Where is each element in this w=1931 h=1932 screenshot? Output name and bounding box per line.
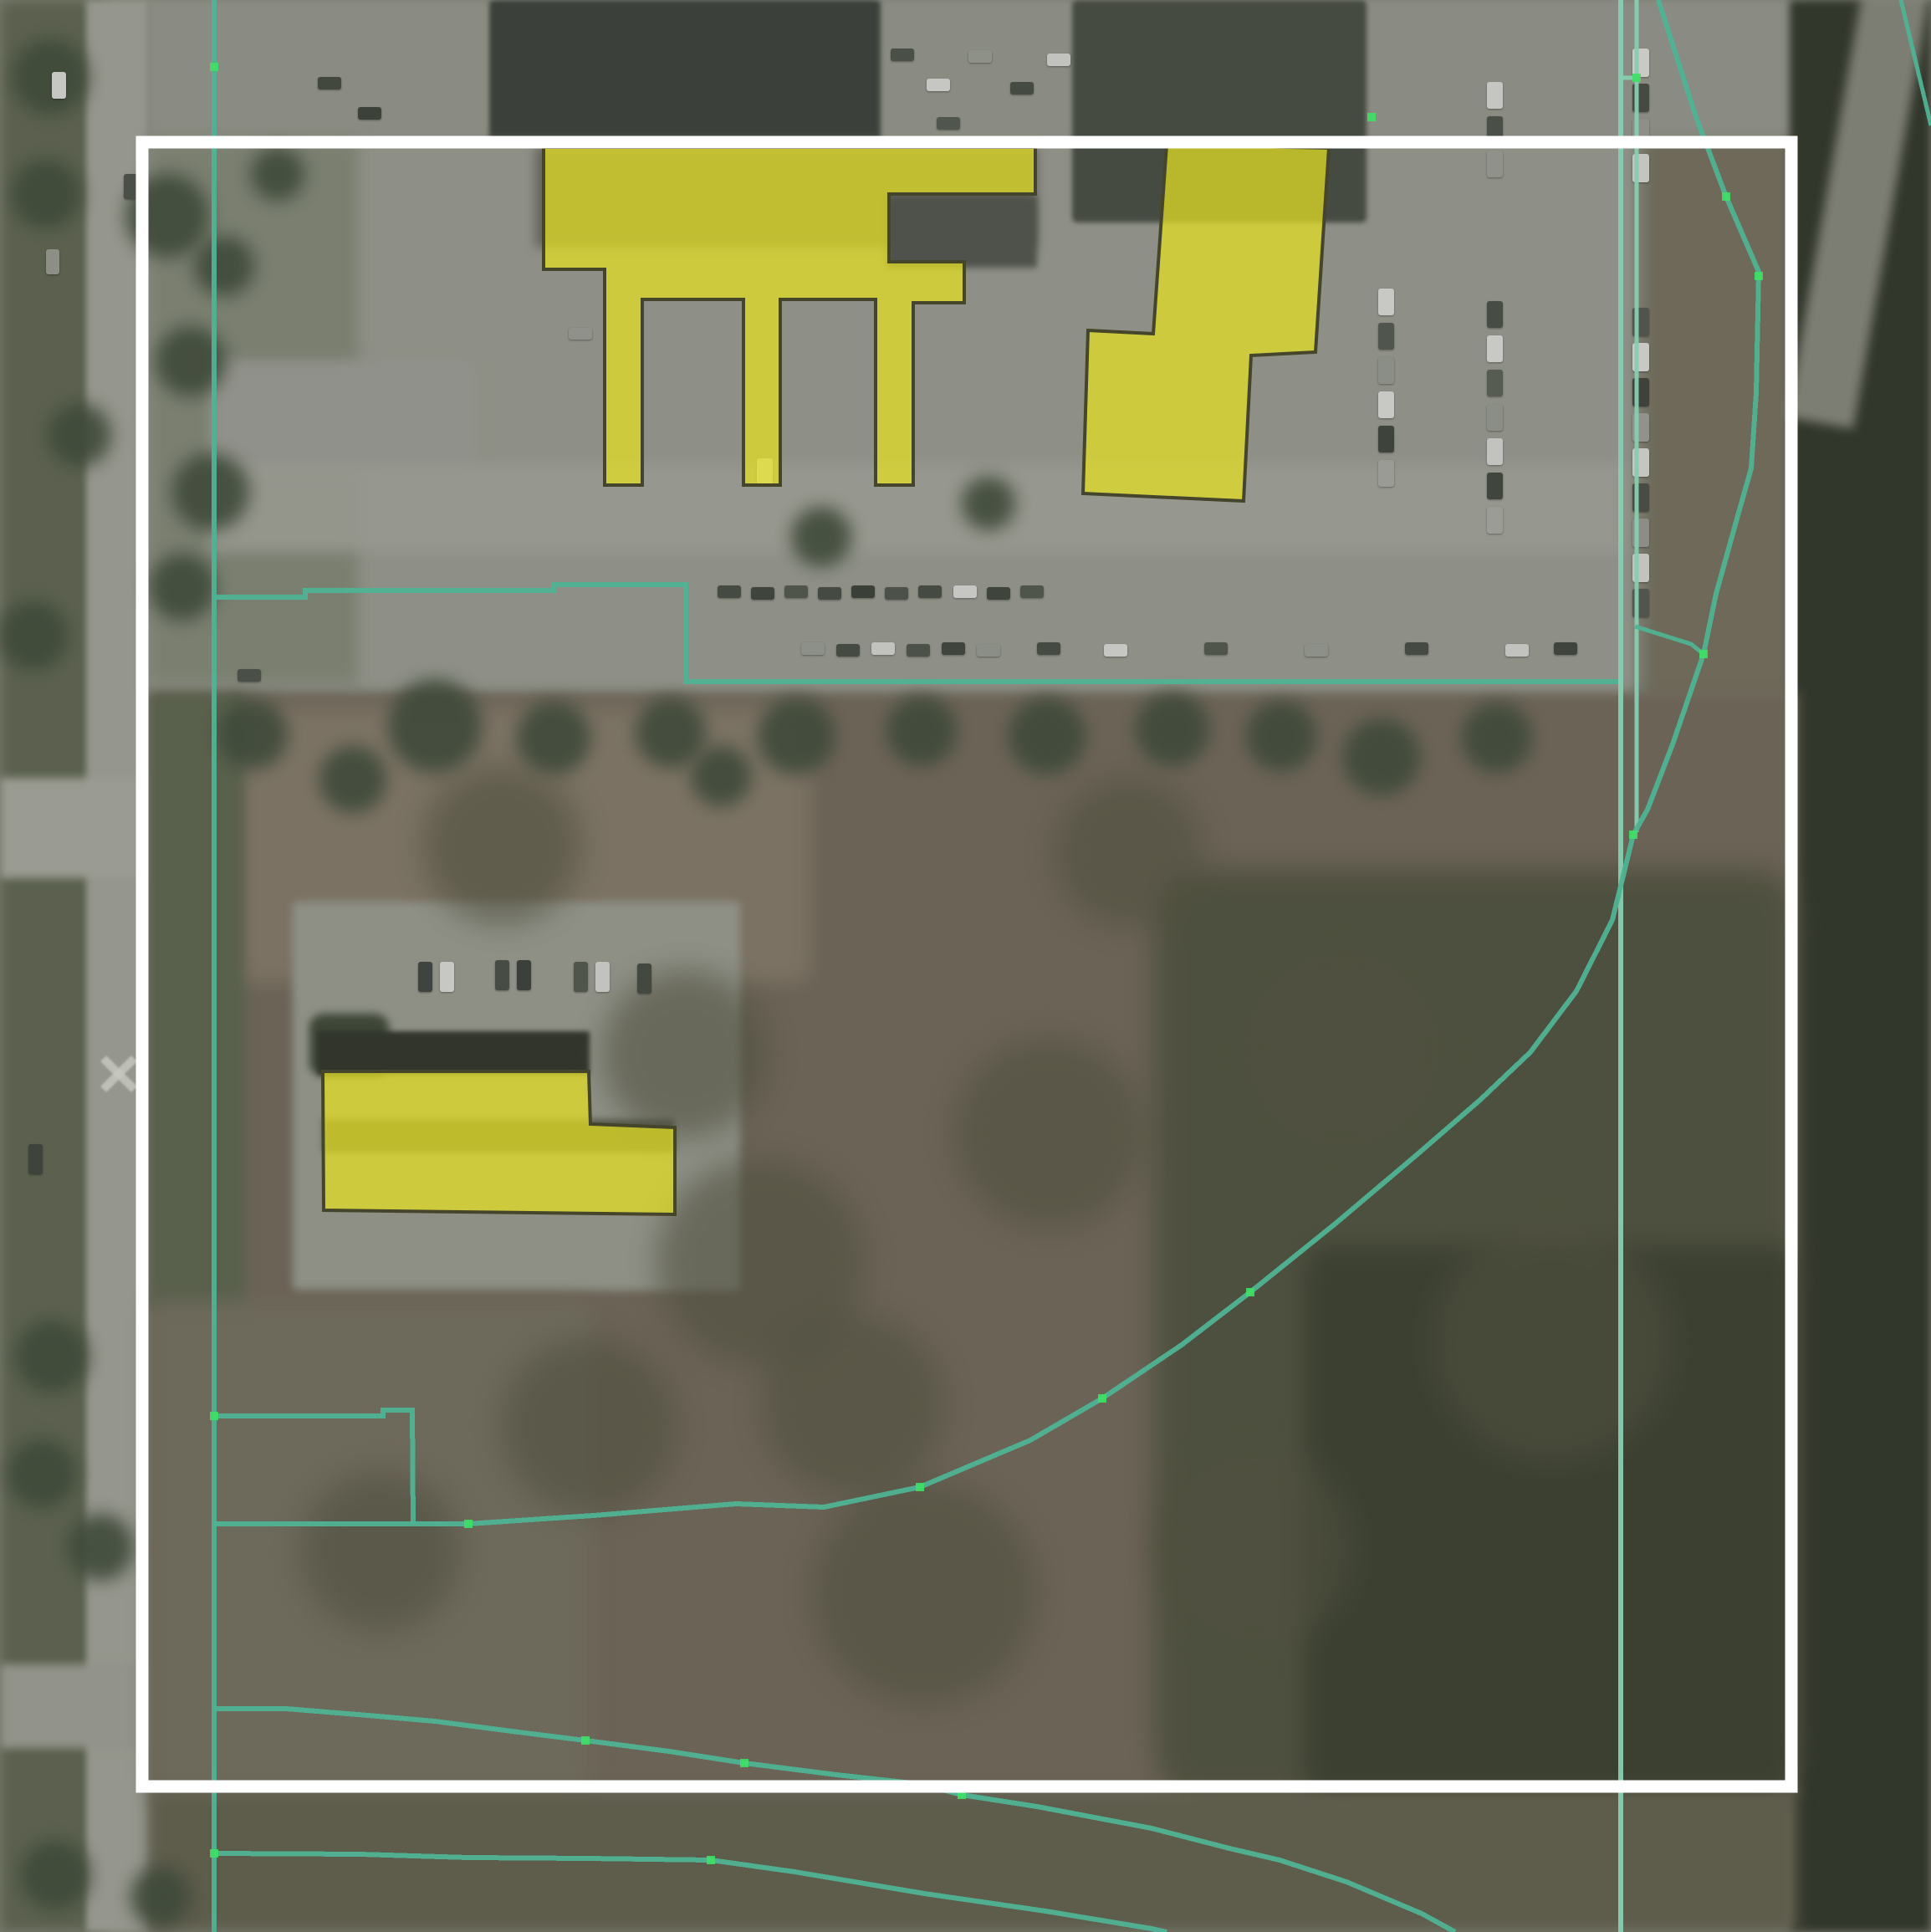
parcel-line-railroad-diagonal [1901, 0, 1931, 125]
parcel-vertex-marker [210, 63, 218, 71]
selection-extent-rectangle [142, 142, 1791, 1786]
parcel-line-south-upper-curve [214, 1709, 1455, 1932]
parcel-vertex-marker [1629, 831, 1637, 839]
building-footprint-north-west[interactable] [544, 147, 1035, 485]
parcel-vertex-marker [210, 1849, 218, 1858]
parcel-line-northeast-diagonal [1633, 0, 1759, 835]
building-footprint-north-east[interactable] [1083, 145, 1329, 501]
parcel-vertex-marker [740, 1759, 748, 1767]
parcel-vertex-marker [1699, 650, 1708, 658]
map-viewport[interactable] [0, 0, 1931, 1932]
parcel-vertex-marker [1722, 192, 1730, 201]
parcel-vertex-marker [1246, 1288, 1254, 1296]
parcel-vertex-marker [464, 1520, 473, 1528]
building-footprint-south-west[interactable] [323, 1071, 675, 1214]
parcel-line-north-boundary [214, 585, 1622, 682]
parcel-vertex-marker [707, 1856, 715, 1864]
parcel-vertex-marker [1367, 113, 1376, 121]
parcel-line-small-lot [214, 1410, 413, 1524]
parcel-vertex-marker [210, 1412, 218, 1420]
parcel-line-south-lower-curve [214, 1853, 1167, 1932]
parcel-vertex-marker [1098, 1394, 1106, 1403]
parcel-vertex-marker [581, 1736, 590, 1745]
parcel-vertex-marker [1755, 272, 1763, 280]
map-overlays [0, 0, 1931, 1932]
parcel-vertex-marker [1632, 74, 1641, 82]
parcel-vertex-marker [916, 1483, 924, 1491]
parcel-line-diagonal-connector [1635, 626, 1704, 654]
